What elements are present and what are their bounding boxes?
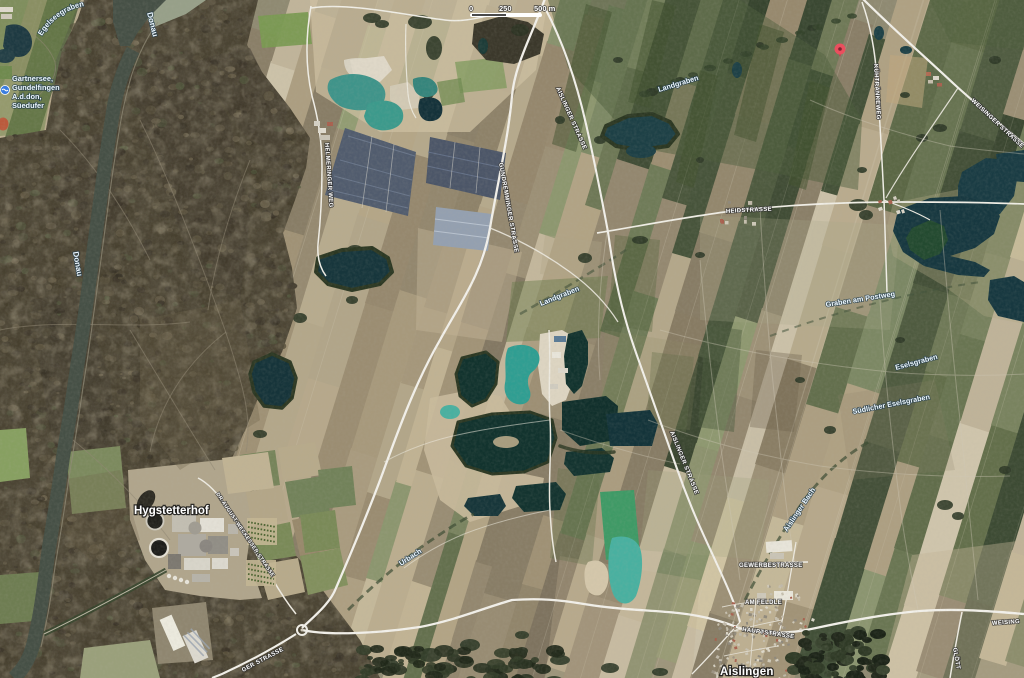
- svg-text:AM FELDLE: AM FELDLE: [745, 600, 782, 606]
- svg-text:500 m: 500 m: [534, 4, 556, 13]
- svg-text:Gartnersee,: Gartnersee,: [12, 74, 53, 83]
- svg-text:Aislingen: Aislingen: [720, 666, 774, 678]
- svg-text:Süedufer: Süedufer: [12, 101, 44, 110]
- svg-text:250: 250: [499, 4, 512, 13]
- svg-text:Gundelfingen: Gundelfingen: [12, 83, 60, 92]
- svg-text:0: 0: [469, 4, 473, 13]
- svg-text:Hygstetterhof: Hygstetterhof: [134, 505, 209, 517]
- svg-text:GEWERBESTRASSE: GEWERBESTRASSE: [739, 563, 803, 569]
- svg-text:A.d.don,: A.d.don,: [12, 92, 42, 101]
